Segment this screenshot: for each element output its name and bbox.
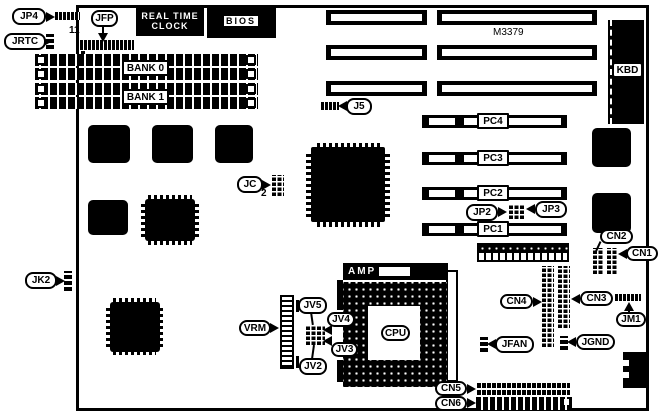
simm-clip: [246, 69, 256, 79]
jgnd-arrow-icon: [567, 337, 576, 347]
jv3-callout: JV3: [331, 342, 358, 357]
cn1-header: [607, 248, 618, 274]
jp2-jp3-jumper-block: [509, 205, 524, 219]
jfp-pin1-note: 11: [69, 25, 80, 36]
isa-slot-segment: [326, 81, 427, 96]
jv2-label: JV2: [304, 361, 322, 372]
rtc-chip: REAL TIME CLOCK: [136, 6, 204, 36]
jv3-arrow-icon: [323, 336, 332, 346]
jc-label: JC: [244, 179, 257, 190]
front-panel-header-sockets: [477, 251, 569, 262]
qfp-chip: [145, 199, 195, 241]
bank0-label-box: BANK 0: [122, 60, 169, 76]
simm-clip: [246, 98, 256, 108]
cpu-label-box: CPU: [381, 325, 410, 341]
cn5-arrow-icon: [467, 384, 476, 394]
isa-slot-segment: [326, 45, 427, 60]
jrtc-label: JRTC: [12, 36, 38, 47]
j5-label: J5: [353, 101, 364, 112]
qfp-chip: [110, 302, 160, 352]
jv4-callout: JV4: [327, 312, 355, 327]
jc-pin2-note: 2: [261, 188, 267, 199]
cn2-callout: CN2: [600, 229, 633, 244]
jv5-label: JV5: [304, 300, 322, 311]
jp2-callout: JP2: [466, 204, 498, 221]
jm1-callout: JM1: [616, 312, 646, 327]
simm-clip: [246, 84, 256, 94]
cn4-callout: CN4: [500, 294, 533, 309]
jv4-label: JV4: [332, 314, 350, 325]
cache-chip: [152, 125, 193, 163]
jv5-callout: JV5: [298, 297, 327, 314]
jp4-label: JP4: [20, 11, 38, 22]
simm-clip: [246, 55, 256, 65]
jp2-label: JP2: [473, 207, 491, 218]
pc3-label-box: PC3: [477, 150, 509, 166]
cn6-connector: [476, 397, 572, 410]
jc-callout: JC: [237, 176, 263, 193]
cn3-header: [558, 266, 570, 328]
simm-clip: [36, 84, 46, 94]
pc2-label: PC2: [483, 188, 502, 199]
vrm-label: VRM: [244, 323, 266, 334]
jm1-label: JM1: [621, 314, 640, 325]
rtc-label-line2: CLOCK: [136, 21, 204, 31]
jp3-callout: JP3: [535, 201, 567, 218]
cn6-callout: CN6: [435, 396, 467, 411]
jv2-callout: JV2: [299, 358, 327, 375]
bios-sticker: BIOS: [222, 14, 260, 28]
pc4-label: PC4: [483, 116, 502, 127]
bios-label: BIOS: [226, 16, 256, 26]
jp4-callout: JP4: [12, 8, 46, 25]
jk2-label: JK2: [32, 275, 50, 286]
cn4-arrow-icon: [533, 297, 542, 307]
rtc-label-line1: REAL TIME: [136, 11, 204, 21]
pc3-label: PC3: [483, 153, 502, 164]
jrtc-callout: JRTC: [4, 33, 46, 50]
simm-clip: [36, 55, 46, 65]
cn1-label: CN1: [632, 248, 652, 259]
pc4-label-box: PC4: [477, 113, 509, 129]
isa-slot-segment: [437, 45, 597, 60]
motherboard-diagram: JP4 JRTC 11 JFP REAL TIME CLOCK BIOS BAN…: [0, 0, 659, 416]
vrm-arrow-icon: [270, 323, 279, 333]
simm-clip: [36, 69, 46, 79]
cn3-arrow-icon: [571, 294, 580, 304]
isa-slot-segment: [326, 10, 427, 25]
cn4-label: CN4: [506, 296, 526, 307]
jc-header: [272, 175, 284, 196]
power-connector-notch: [623, 360, 629, 366]
vrm-slot: [280, 295, 294, 369]
kbd-label: KBD: [617, 65, 639, 76]
jv3-label: JV3: [336, 344, 354, 355]
jv4-arrow-icon: [323, 325, 332, 335]
vrm-callout: VRM: [239, 320, 271, 336]
pc2-label-box: PC2: [477, 185, 509, 201]
jgnd-label: JGND: [582, 337, 610, 348]
amp-retention-bar: AMP: [343, 263, 448, 280]
cn3-label: CN3: [586, 293, 606, 304]
cn5-label: CN5: [441, 383, 461, 394]
jfp-arrow-icon: [98, 33, 108, 42]
jk2-arrow-icon: [56, 276, 65, 286]
jp3-label: JP3: [542, 204, 560, 215]
jp2-arrow-icon: [498, 207, 507, 217]
cpu-label: CPU: [385, 328, 406, 339]
j5-callout: J5: [346, 98, 372, 115]
cn6-label: CN6: [441, 398, 461, 409]
jm1-header: [615, 294, 641, 301]
power-connector-notch: [623, 372, 629, 378]
jp4-header: [55, 12, 80, 20]
bank1-label-box: BANK 1: [122, 89, 169, 105]
jk2-component: [64, 271, 72, 291]
kbd-label-box: KBD: [612, 62, 643, 78]
io-chip: [592, 193, 631, 233]
isa-slot-segment: [437, 81, 597, 96]
isa-slot-segment: [437, 10, 597, 25]
cn3-callout: CN3: [580, 291, 613, 306]
cn5-callout: CN5: [435, 381, 467, 396]
jgnd-callout: JGND: [576, 334, 615, 350]
amp-label: AMP: [348, 266, 376, 277]
amp-bar-window: [379, 267, 410, 276]
jk2-callout: JK2: [25, 272, 57, 289]
chipset-silkscreen: M3379: [493, 27, 524, 38]
jp3-arrow-icon: [526, 204, 535, 214]
pc1-label: PC1: [483, 224, 502, 235]
j5-header: [321, 102, 339, 110]
cn6-pin1-mark: [564, 399, 569, 405]
cache-chip: [88, 200, 128, 235]
cn5-connector: [477, 383, 570, 395]
simm-clip: [36, 98, 46, 108]
jp4-arrow-icon: [46, 12, 55, 22]
bank0-label: BANK 0: [127, 63, 164, 74]
io-chip: [592, 128, 631, 167]
cn2-label: CN2: [606, 231, 626, 242]
jm1-arrow-icon: [624, 302, 634, 311]
jfan-callout: JFAN: [495, 336, 534, 353]
chipset-qfp-chip: [311, 147, 385, 222]
jfan-label: JFAN: [502, 339, 528, 350]
cpu-socket-lever: [446, 270, 458, 382]
power-connector: [623, 352, 649, 388]
pc1-label-box: PC1: [477, 221, 509, 237]
jfp-callout: JFP: [91, 10, 118, 27]
front-panel-header-pins: [477, 243, 569, 251]
cn6-arrow-icon: [467, 398, 476, 408]
cache-chip: [215, 125, 253, 163]
bank1-label: BANK 1: [127, 92, 164, 103]
jfp-label: JFP: [95, 13, 113, 24]
cn1-callout: CN1: [626, 246, 658, 261]
cn4-header: [542, 266, 554, 347]
cache-chip: [88, 125, 130, 163]
